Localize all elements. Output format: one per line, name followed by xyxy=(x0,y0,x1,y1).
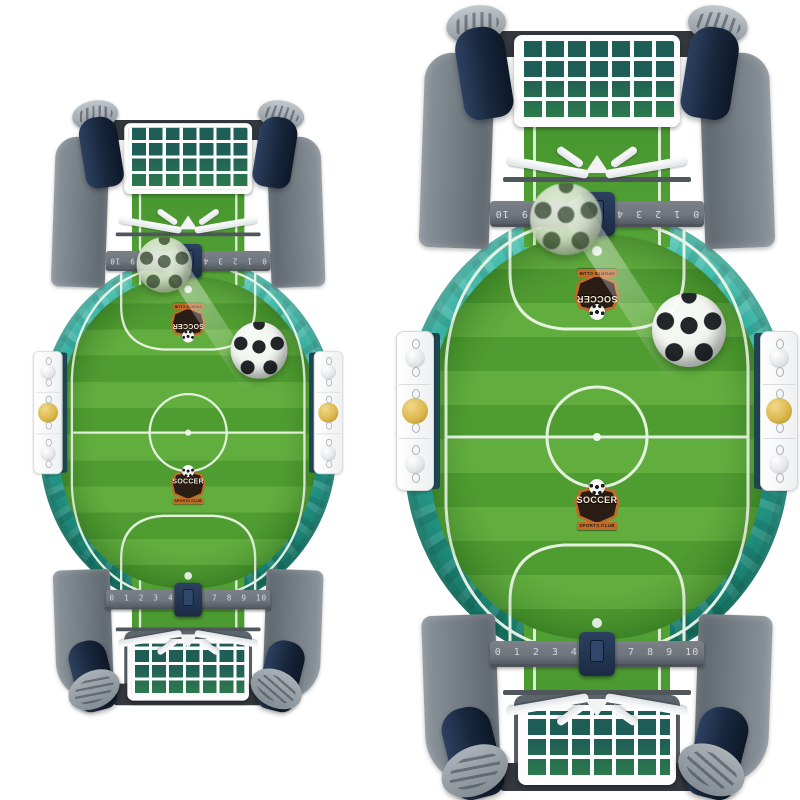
soccer-ball-icon xyxy=(182,330,194,342)
soccer-ball xyxy=(231,322,288,379)
slider-grip xyxy=(183,589,194,606)
spare-ball-clip xyxy=(405,454,425,474)
soccer-ball-icon xyxy=(182,465,194,477)
launcher-center-wedge xyxy=(585,155,609,173)
silver-ball xyxy=(405,454,425,474)
gold-ball xyxy=(766,398,792,424)
soccer-table-board: SOCCER SPORTS CLUB SOCCER SPORTS CLUB xyxy=(38,100,338,708)
silver-ball xyxy=(405,348,425,368)
soccer-ball-moving xyxy=(530,183,602,255)
board-variant-large: SOCCER SPORTS CLUB SOCCER SPORTS CLUB xyxy=(402,5,792,795)
silver-ball xyxy=(321,364,336,379)
panel-seam xyxy=(399,438,431,439)
launcher-axle xyxy=(503,690,691,695)
soccer-badge-bottom: SOCCER SPORTS CLUB xyxy=(574,478,620,536)
soccer-field: SOCCER SPORTS CLUB SOCCER SPORTS CLUB xyxy=(60,277,317,588)
ball-launcher-bottom xyxy=(497,669,697,725)
knob-body xyxy=(251,114,300,190)
panel-seam xyxy=(316,392,341,393)
badge-title: SOCCER xyxy=(170,477,205,485)
silver-ball xyxy=(40,446,55,461)
spare-ball-clip xyxy=(318,403,338,423)
gold-ball xyxy=(318,403,338,423)
knob-body xyxy=(76,114,125,190)
launcher-axle xyxy=(503,177,691,182)
spare-ball-clip xyxy=(402,398,428,424)
goal-net-top xyxy=(514,35,680,127)
soccer-table-board: SOCCER SPORTS CLUB SOCCER SPORTS CLUB xyxy=(402,5,792,795)
spare-ball-clip xyxy=(766,398,792,424)
product-photo-scene: SOCCER SPORTS CLUB SOCCER SPORTS CLUB xyxy=(0,0,800,800)
board-variant-small: SOCCER SPORTS CLUB SOCCER SPORTS CLUB xyxy=(38,100,338,708)
goal-net-top xyxy=(124,123,252,194)
spare-ball-clip xyxy=(321,364,336,379)
panel-seam xyxy=(316,433,341,434)
panel-seam xyxy=(763,438,795,439)
knob-body xyxy=(452,24,516,123)
soccer-ball-moving xyxy=(137,237,192,292)
spare-ball-clip xyxy=(40,446,55,461)
spare-ball-clip xyxy=(38,403,58,423)
launcher-axle xyxy=(116,232,261,236)
soccer-ball xyxy=(652,293,726,367)
panel-seam xyxy=(36,433,61,434)
panel-seam xyxy=(399,384,431,385)
silver-ball xyxy=(40,364,55,379)
ball-holder-panel-right xyxy=(314,351,343,474)
ball-holder-panel-right xyxy=(760,331,798,491)
ball-holder-panel-left xyxy=(33,351,62,474)
gold-ball xyxy=(402,398,428,424)
badge-title: SOCCER xyxy=(574,495,620,505)
spare-ball-clip xyxy=(40,364,55,379)
silver-ball xyxy=(769,348,789,368)
ball-launcher-bottom xyxy=(111,611,265,654)
spare-ball-clip xyxy=(769,454,789,474)
badge-banner: SPORTS CLUB xyxy=(577,522,617,530)
slider-grip xyxy=(590,640,604,662)
ball-holder-panel-left xyxy=(396,331,434,491)
launcher-center-wedge xyxy=(179,216,197,230)
soccer-badge-bottom: SOCCER SPORTS CLUB xyxy=(170,464,205,509)
spare-ball-clip xyxy=(405,348,425,368)
launcher-center-wedge xyxy=(585,699,609,717)
launcher-center-wedge xyxy=(179,634,197,648)
spare-ball-clip xyxy=(321,446,336,461)
spare-ball-clip xyxy=(769,348,789,368)
launcher-axle xyxy=(116,627,261,631)
knob-body xyxy=(678,24,742,123)
soccer-ball-icon xyxy=(589,479,605,495)
gold-ball xyxy=(38,403,58,423)
badge-banner: SPORTS CLUB xyxy=(173,498,204,504)
panel-seam xyxy=(763,384,795,385)
panel-seam xyxy=(36,392,61,393)
silver-ball xyxy=(321,446,336,461)
silver-ball xyxy=(769,454,789,474)
soccer-field: SOCCER SPORTS CLUB SOCCER SPORTS CLUB xyxy=(430,235,764,639)
soccer-ball-icon xyxy=(589,304,605,320)
